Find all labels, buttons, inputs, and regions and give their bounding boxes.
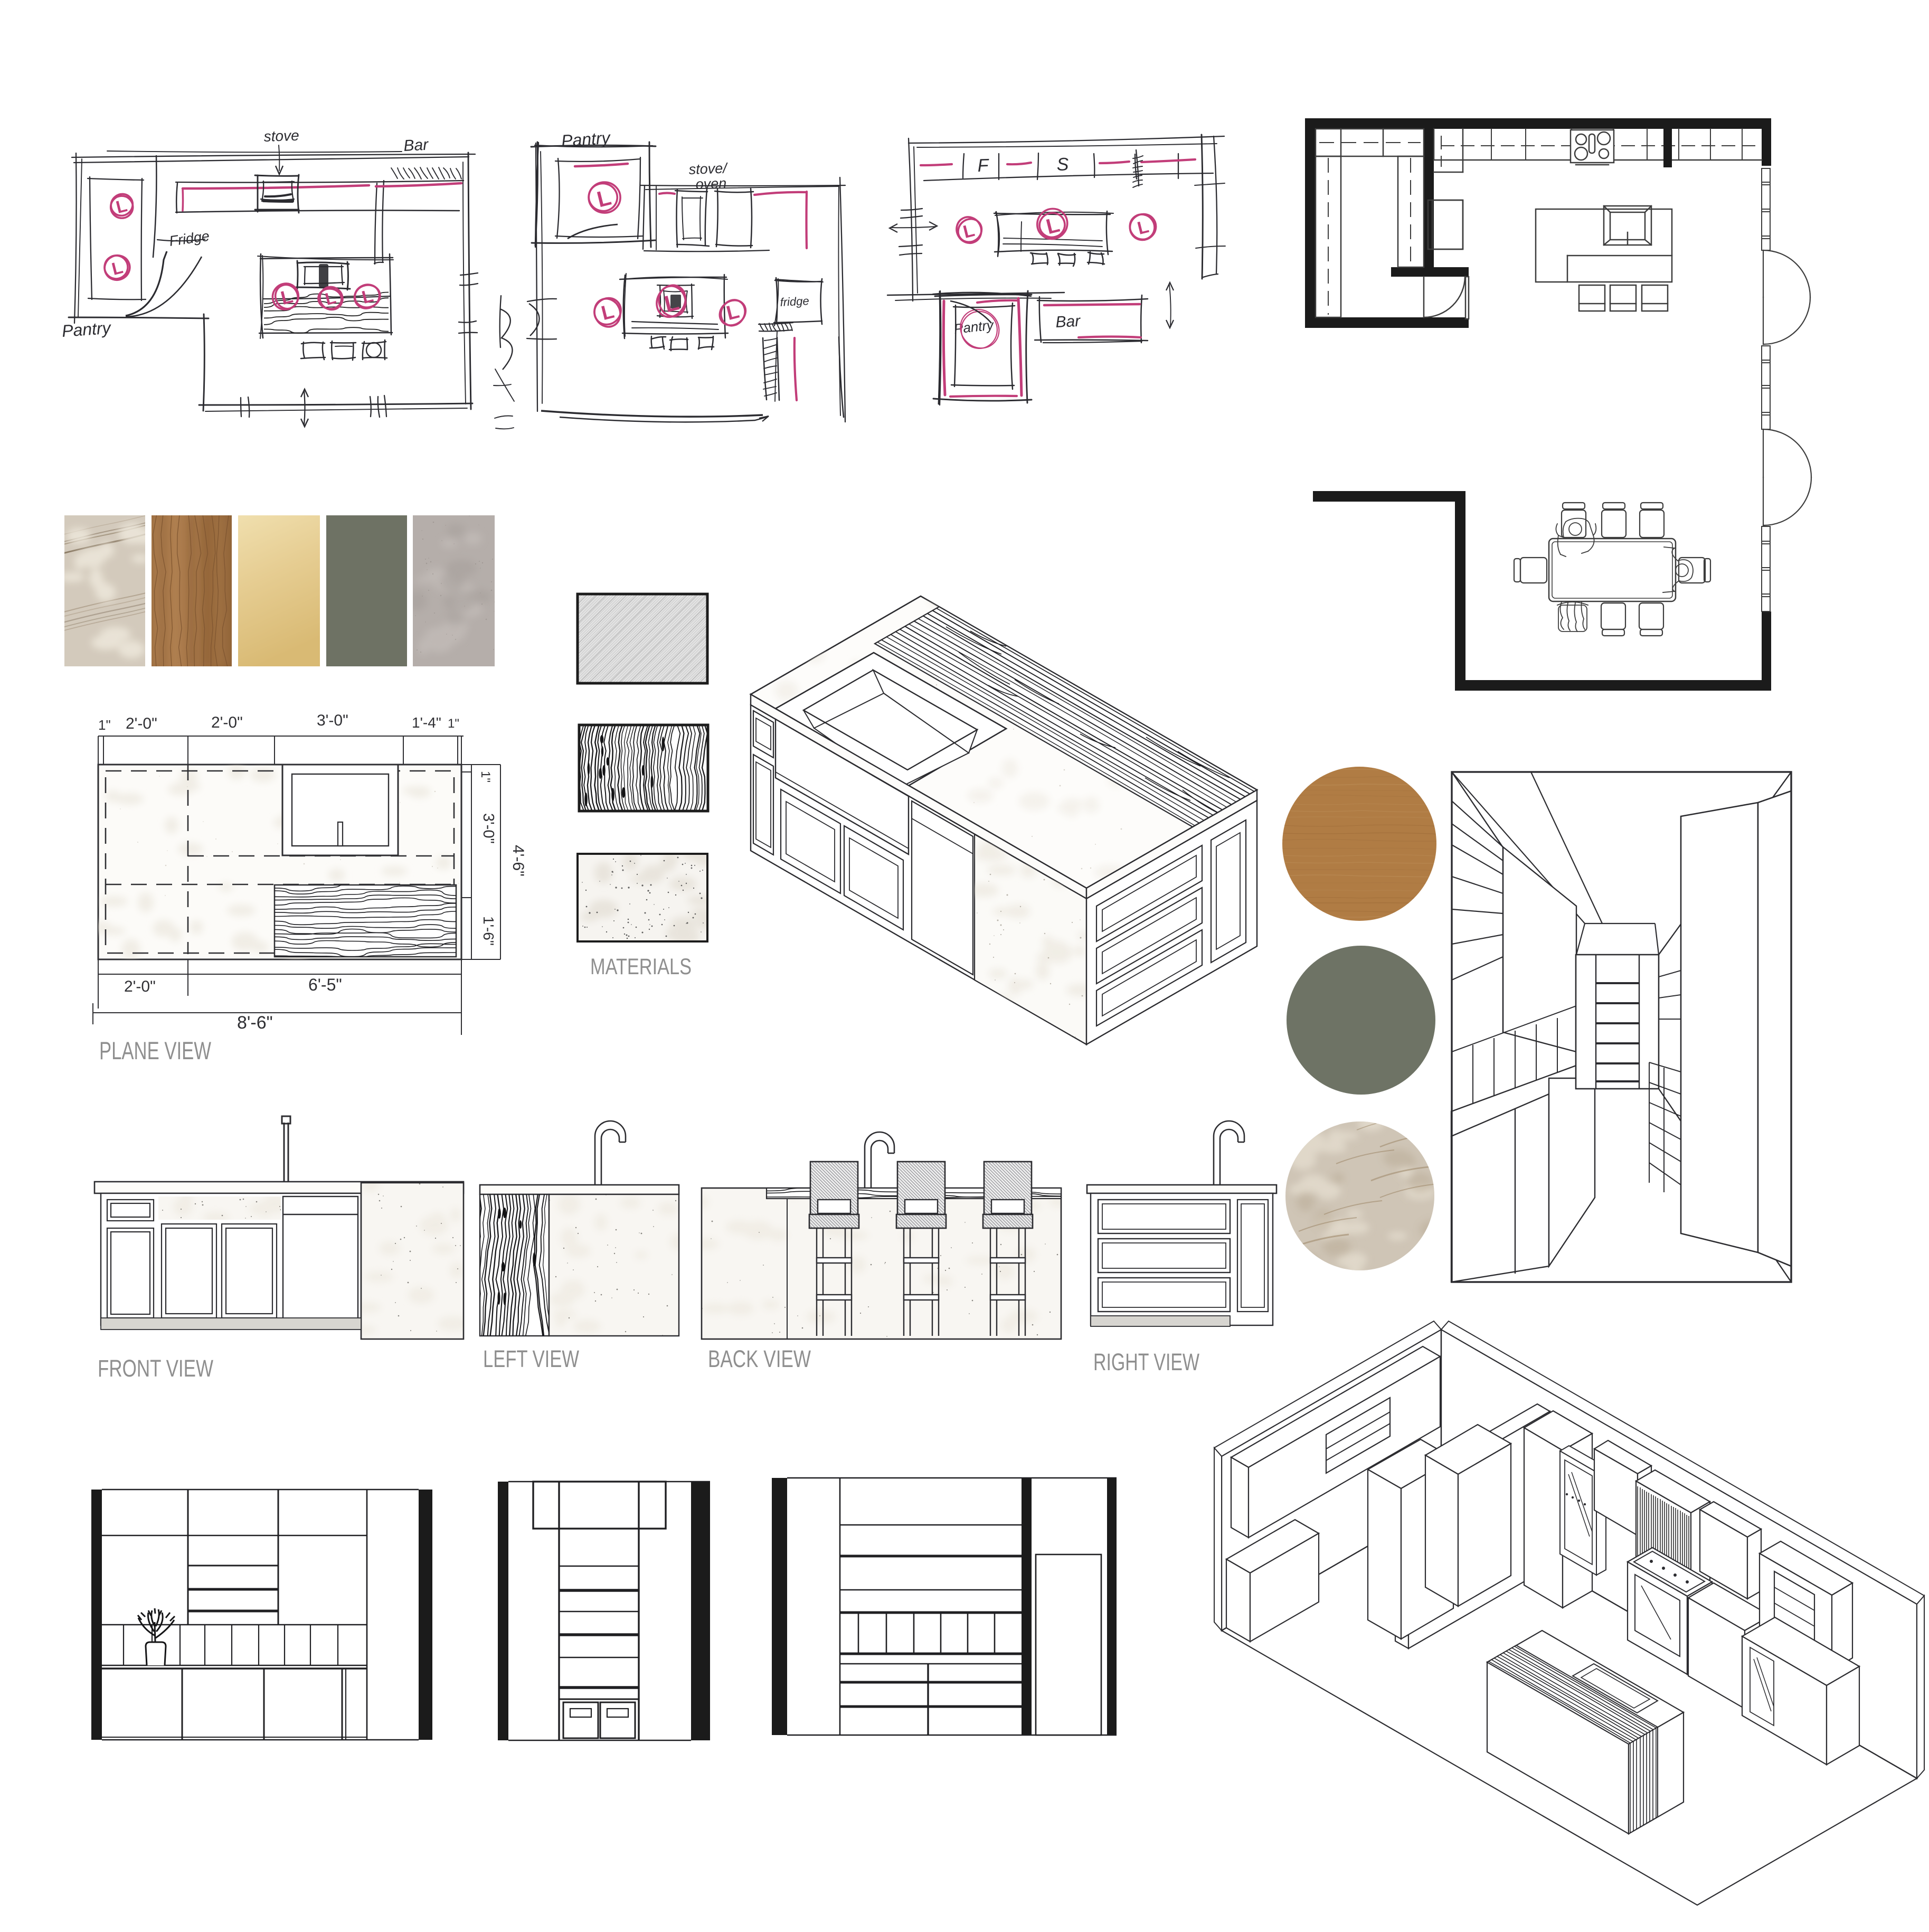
svg-text:2'-0": 2'-0" bbox=[124, 978, 156, 995]
svg-text:S: S bbox=[1056, 154, 1069, 175]
svg-text:4'-6": 4'-6" bbox=[509, 845, 527, 877]
svg-text:F: F bbox=[977, 155, 990, 176]
svg-text:3'-0": 3'-0" bbox=[480, 813, 497, 844]
svg-text:BACK VIEW: BACK VIEW bbox=[708, 1345, 811, 1372]
svg-text:FRONT VIEW: FRONT VIEW bbox=[98, 1355, 213, 1382]
svg-text:2'-0": 2'-0" bbox=[211, 714, 243, 731]
svg-text:1'-4": 1'-4" bbox=[412, 714, 441, 731]
svg-text:Pantry: Pantry bbox=[61, 318, 112, 341]
svg-text:1'-6": 1'-6" bbox=[480, 916, 497, 946]
svg-text:RIGHT VIEW: RIGHT VIEW bbox=[1093, 1349, 1199, 1375]
svg-text:6'-5": 6'-5" bbox=[308, 975, 342, 994]
svg-text:LEFT VIEW: LEFT VIEW bbox=[483, 1345, 579, 1372]
svg-text:1": 1" bbox=[448, 717, 459, 731]
svg-text:stove/: stove/ bbox=[688, 160, 729, 177]
svg-text:stove: stove bbox=[263, 127, 299, 145]
svg-text:Bar: Bar bbox=[403, 136, 429, 155]
svg-text:1": 1" bbox=[98, 717, 111, 733]
svg-text:oven: oven bbox=[695, 175, 727, 192]
svg-text:8'-6": 8'-6" bbox=[237, 1013, 273, 1033]
svg-text:PLANE VIEW: PLANE VIEW bbox=[99, 1036, 211, 1064]
svg-text:fridge: fridge bbox=[780, 294, 809, 309]
svg-text:MATERIALS: MATERIALS bbox=[590, 954, 692, 979]
svg-text:2'-0": 2'-0" bbox=[126, 715, 157, 732]
svg-text:3'-0": 3'-0" bbox=[317, 712, 348, 729]
svg-text:Bar: Bar bbox=[1055, 313, 1081, 331]
svg-text:1": 1" bbox=[478, 771, 493, 783]
